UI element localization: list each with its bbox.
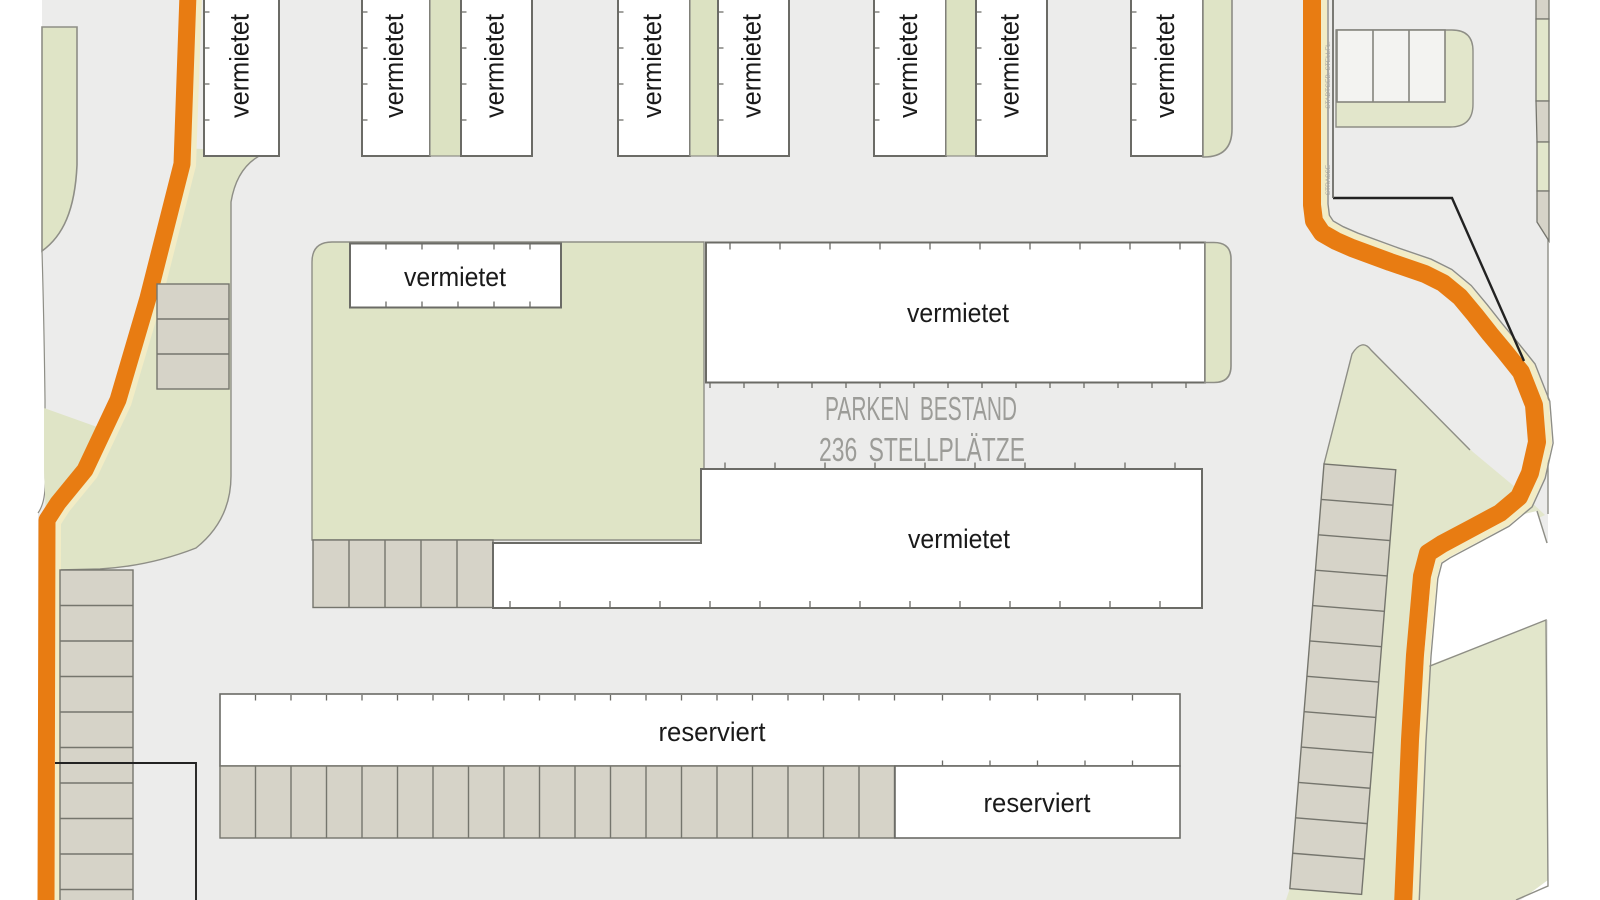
svg-text:STADTGEB. STELLFL.: STADTGEB. STELLFL. [1325,41,1332,109]
svg-text:vermietet: vermietet [893,14,923,118]
svg-text:vermietet: vermietet [907,298,1009,328]
svg-text:236 STELLPLÄTZE: 236 STELLPLÄTZE [819,431,1025,468]
svg-text:reserviert: reserviert [659,717,766,747]
svg-text:vermietet: vermietet [225,14,255,118]
svg-text:vermietet: vermietet [995,14,1025,118]
svg-text:STRASSE: STRASSE [1325,164,1332,195]
svg-text:vermietet: vermietet [404,262,506,292]
svg-text:vermietet: vermietet [480,14,510,118]
svg-text:vermietet: vermietet [379,14,409,118]
svg-text:vermietet: vermietet [637,14,667,118]
svg-text:vermietet: vermietet [1150,14,1180,118]
svg-text:vermietet: vermietet [908,524,1010,554]
svg-text:PARKEN BESTAND: PARKEN BESTAND [825,390,1017,427]
svg-text:reserviert: reserviert [984,788,1091,818]
svg-text:vermietet: vermietet [737,14,767,118]
